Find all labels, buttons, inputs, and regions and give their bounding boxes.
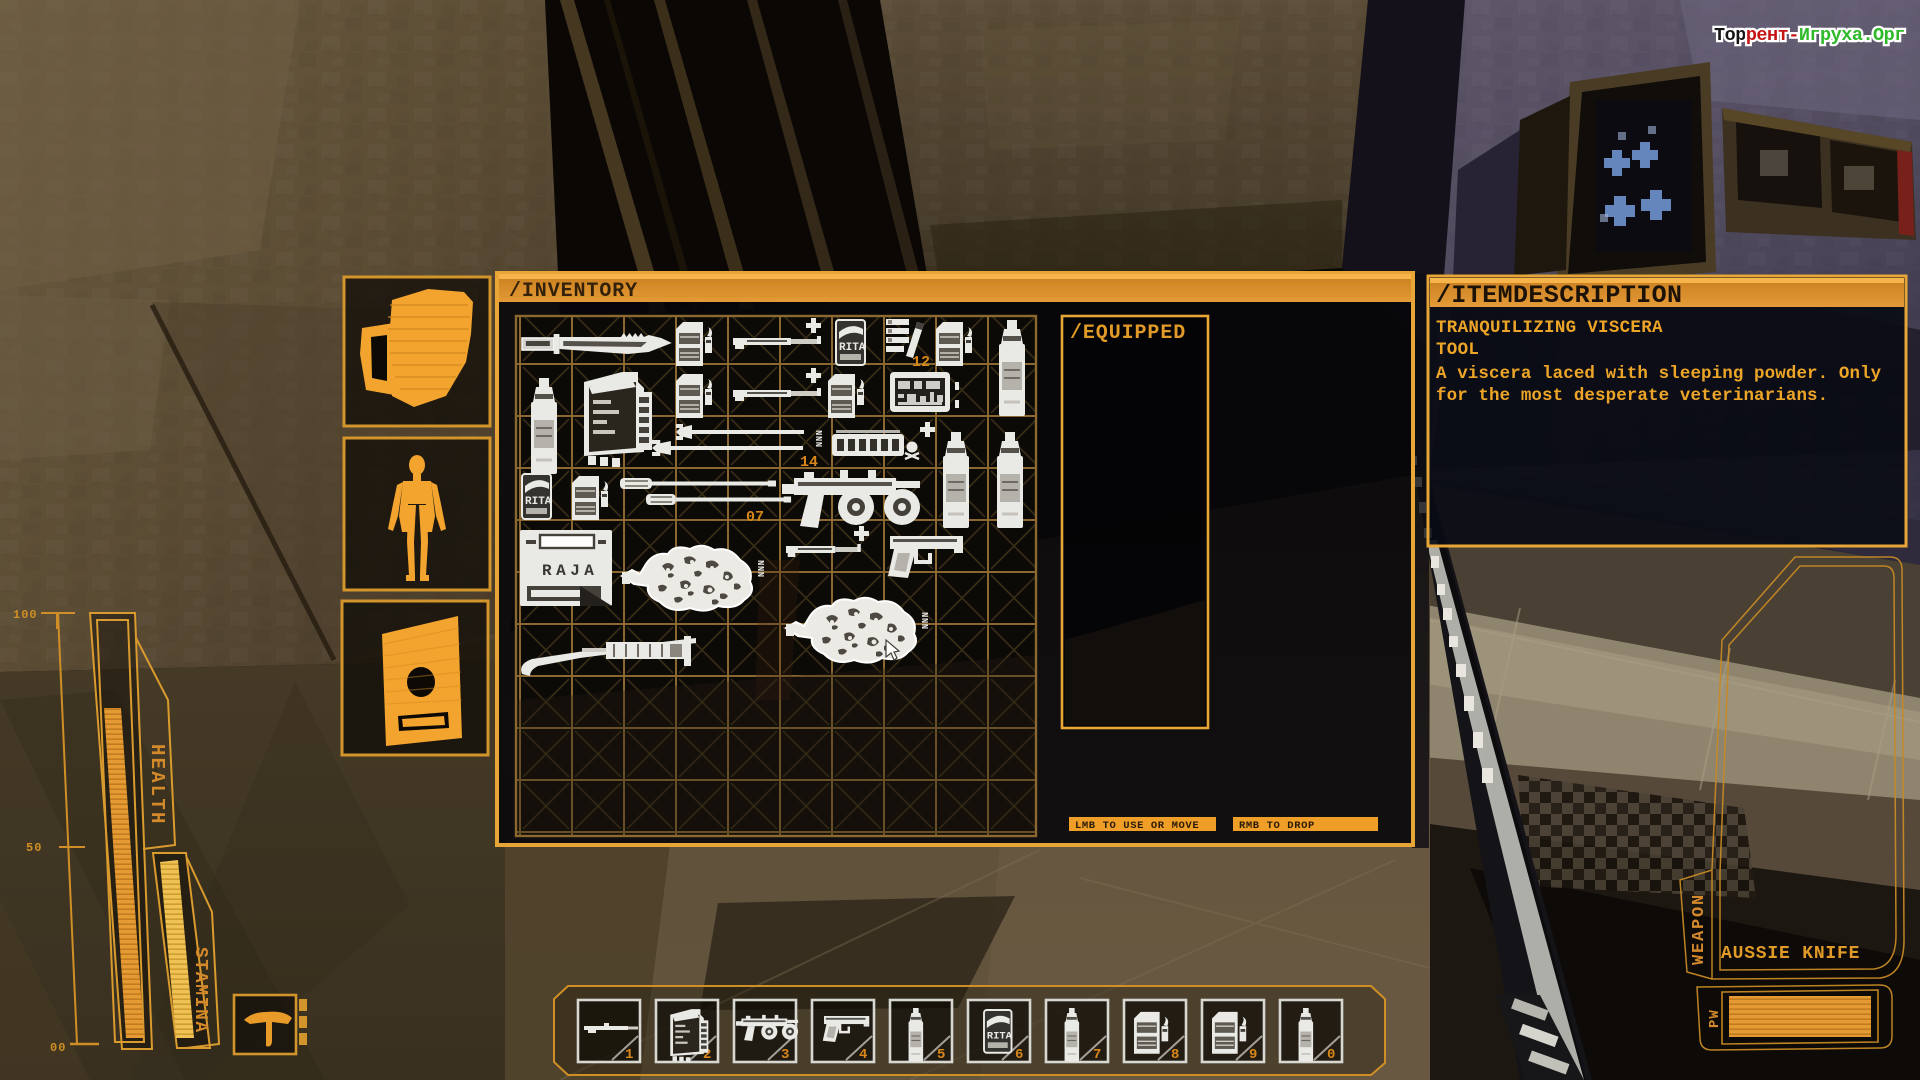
svg-text:/ITEMDESCRIPTION: /ITEMDESCRIPTION: [1436, 281, 1682, 310]
svg-text:TOOL: TOOL: [1436, 340, 1479, 360]
svg-text:NNN: NNN: [813, 430, 823, 448]
svg-text:AUSSIE KNIFE: AUSSIE KNIFE: [1721, 944, 1860, 964]
svg-text:for the most desperate veterin: for the most desperate veterinarians.: [1436, 386, 1828, 406]
svg-text:LMB TO USE OR MOVE: LMB TO USE OR MOVE: [1075, 820, 1199, 832]
svg-text:00: 00: [50, 1041, 66, 1055]
svg-text:6: 6: [1015, 1047, 1023, 1063]
svg-text:STAMINA: STAMINA: [190, 947, 210, 1034]
svg-text:TRANQUILIZING VISCERA: TRANQUILIZING VISCERA: [1436, 318, 1663, 338]
svg-text:4: 4: [859, 1047, 867, 1063]
svg-text:A viscera laced with sleeping: A viscera laced with sleeping powder. On…: [1436, 364, 1882, 384]
svg-text:5: 5: [937, 1047, 945, 1063]
svg-text:/EQUIPPED: /EQUIPPED: [1070, 322, 1186, 345]
svg-text:9: 9: [1249, 1047, 1257, 1063]
svg-text:12: 12: [912, 354, 930, 371]
svg-text:HEALTH: HEALTH: [146, 744, 168, 826]
svg-text:WEAPON: WEAPON: [1690, 893, 1709, 965]
svg-text:14: 14: [800, 454, 818, 471]
svg-text:100: 100: [13, 608, 38, 622]
svg-text:Торрент-Игруха.Орг: Торрент-Игруха.Орг: [1714, 25, 1905, 46]
svg-text:0: 0: [1327, 1047, 1335, 1063]
svg-text:07: 07: [746, 509, 764, 526]
svg-text:3: 3: [781, 1047, 789, 1063]
svg-text:NNN: NNN: [919, 612, 929, 630]
svg-text:/INVENTORY: /INVENTORY: [509, 280, 638, 303]
svg-text:50: 50: [26, 841, 42, 855]
svg-text:1: 1: [625, 1047, 633, 1063]
svg-text:PW: PW: [1707, 1009, 1723, 1028]
svg-text:7: 7: [1093, 1047, 1101, 1063]
svg-text:NNN: NNN: [755, 560, 765, 578]
svg-text:RMB TO DROP: RMB TO DROP: [1239, 820, 1315, 832]
svg-text:8: 8: [1171, 1047, 1179, 1063]
